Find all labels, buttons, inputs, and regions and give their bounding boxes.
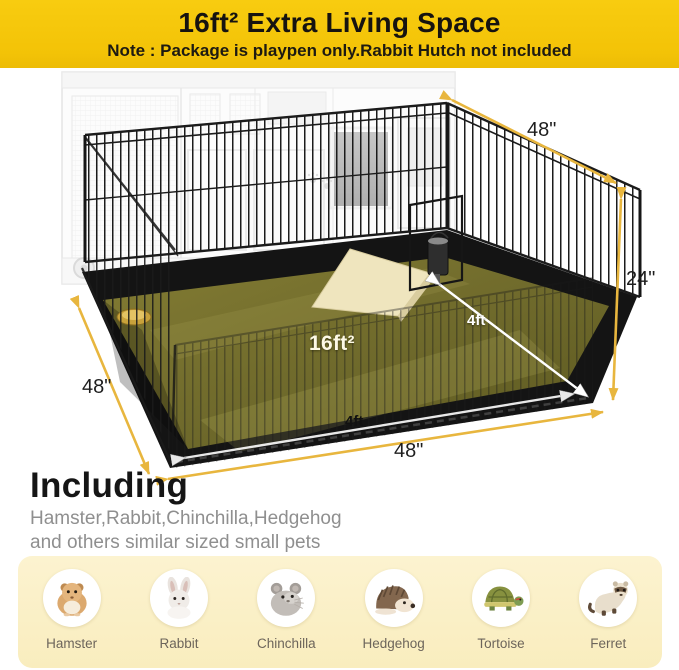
animal-band: Hamster Rabbit bbox=[18, 556, 662, 668]
banner-note: Note : Package is playpen only.Rabbit Hu… bbox=[0, 41, 679, 61]
animal-item-rabbit: Rabbit bbox=[129, 569, 229, 651]
tortoise-image bbox=[478, 577, 524, 619]
hamster-image bbox=[49, 577, 95, 619]
animal-item-chinchilla: Chinchilla bbox=[236, 569, 336, 651]
animal-label: Ferret bbox=[590, 636, 626, 651]
banner-title: 16ft² Extra Living Space bbox=[0, 0, 679, 39]
mat-depth-label: 4ft bbox=[467, 312, 485, 329]
including-line-1: Hamster,Rabbit,Chinchilla,Hedgehog bbox=[30, 508, 342, 530]
animal-label: Tortoise bbox=[477, 636, 524, 651]
area-label: 16ft² bbox=[309, 332, 355, 356]
chinchilla-image bbox=[263, 577, 309, 619]
dim-top-width-label: 48" bbox=[527, 119, 556, 142]
including-section: Including Hamster,Rabbit,Chinchilla,Hedg… bbox=[30, 466, 342, 554]
mat-width-label: 4ft bbox=[345, 413, 363, 430]
animal-label: Chinchilla bbox=[257, 636, 316, 651]
dim-left-depth-label: 48" bbox=[82, 376, 111, 399]
animal-label: Rabbit bbox=[159, 636, 198, 651]
dim-front-width-label: 48" bbox=[394, 440, 423, 463]
animal-item-hamster: Hamster bbox=[22, 569, 122, 651]
including-heading: Including bbox=[30, 466, 342, 506]
product-infographic: 16ft² Extra Living Space Note : Package … bbox=[0, 0, 679, 670]
top-banner: 16ft² Extra Living Space Note : Package … bbox=[0, 0, 679, 68]
rabbit-image bbox=[156, 577, 202, 619]
animal-item-tortoise: Tortoise bbox=[451, 569, 551, 651]
including-line-2: and others similar sized small pets bbox=[30, 532, 342, 554]
ferret-image bbox=[585, 577, 631, 619]
hedgehog-image bbox=[371, 577, 417, 619]
dim-height-label: 24" bbox=[626, 268, 655, 291]
animal-item-ferret: Ferret bbox=[558, 569, 658, 651]
animal-label: Hamster bbox=[46, 636, 97, 651]
animal-item-hedgehog: Hedgehog bbox=[344, 569, 444, 651]
animal-label: Hedgehog bbox=[362, 636, 424, 651]
